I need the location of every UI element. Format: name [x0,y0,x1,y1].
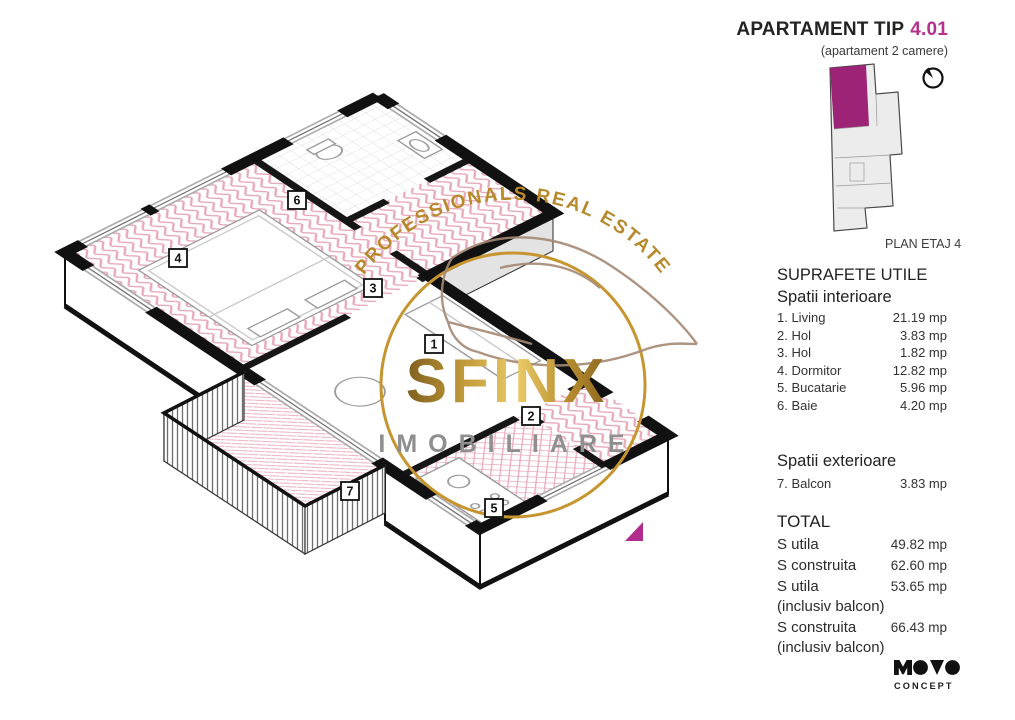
row-label: S utila [777,578,819,595]
brand-sfinx: SFINX [406,347,609,416]
table-row: 2. Hol 3.83 mp [777,328,947,343]
table-row: 3. Hol 1.82 mp [777,345,947,360]
table-row: 4. Dormitor 12.82 mp [777,363,947,378]
mini-building [830,64,902,231]
room-label-hol2: 2 [522,407,540,425]
svg-text:2: 2 [528,410,535,424]
room-label-hol3: 3 [364,279,382,297]
apartment-subtitle: (apartament 2 camere) [821,44,948,58]
section-title-suprafete: SUPRAFETE UTILE [777,266,927,285]
total-row: S utila 53.65 mp [777,578,947,595]
row-value: 5.96 mp [900,380,947,395]
row-value: 12.82 mp [893,363,947,378]
total-row: S construita 66.43 mp [777,619,947,636]
section-title-total: TOTAL [777,512,830,532]
svg-text:7: 7 [347,485,354,499]
mono-concept-logo: MONO CONCEPT [891,658,976,696]
svg-text:3: 3 [370,282,377,296]
total-row-note: (inclusiv balcon) [777,639,885,656]
table-row: 7. Balcon 3.83 mp [777,476,947,491]
section-title-exterior: Spatii exterioare [777,452,896,471]
mini-floor-plan: PLAN ETAJ 4 [810,58,990,258]
total-row: S utila 49.82 mp [777,536,947,553]
apartment-number: 4.01 [910,19,948,40]
page: PROFESSIONALS REAL ESTATE SFINX IMOBILIA… [0,0,1015,720]
row-label: 4. Dormitor [777,363,841,378]
section-title-interior: Spatii interioare [777,288,892,307]
room-label-living: 1 [425,335,443,353]
table-row: 5. Bucatarie 5.96 mp [777,380,947,395]
row-value: 1.82 mp [900,345,947,360]
row-label: S utila [777,536,819,553]
total-row: S construita 62.60 mp [777,557,947,574]
row-label: S construita [777,557,856,574]
row-label: S construita [777,619,856,636]
row-label: 5. Bucatarie [777,380,846,395]
room-label-bucatarie: 5 [485,499,503,517]
row-label: 1. Living [777,310,825,325]
svg-text:4: 4 [175,252,182,266]
row-value: 62.60 mp [891,558,947,573]
svg-text:1: 1 [431,338,438,352]
floor-plan-drawing: PROFESSIONALS REAL ESTATE SFINX IMOBILIA… [0,0,760,720]
row-label: 2. Hol [777,328,811,343]
row-label: 6. Baie [777,398,817,413]
north-compass-icon [924,68,943,88]
row-value: 21.19 mp [893,310,947,325]
plan-marker-triangle [625,522,643,541]
mini-plan-caption: PLAN ETAJ 4 [885,237,961,251]
svg-text:5: 5 [491,502,498,516]
mono-logo-glyphs [894,660,960,675]
table-row: 6. Baie 4.20 mp [777,398,947,413]
table-row: 1. Living 21.19 mp [777,310,947,325]
row-label: 7. Balcon [777,476,831,491]
room-label-balcon: 7 [341,482,359,500]
row-value: 3.83 mp [900,328,947,343]
row-value: 49.82 mp [891,537,947,552]
room-label-dormitor: 4 [169,249,187,267]
svg-text:6: 6 [294,194,301,208]
row-label: 3. Hol [777,345,811,360]
room-label-baie: 6 [288,191,306,209]
total-row-note: (inclusiv balcon) [777,598,885,615]
row-value: 66.43 mp [891,620,947,635]
logo-concept-text: CONCEPT [894,681,954,691]
apartment-title: APARTAMENT TIP [736,19,904,40]
brand-imobiliare: IMOBILIARE [378,430,635,458]
row-value: 4.20 mp [900,398,947,413]
page-title: APARTAMENT TIP4.01 [736,19,948,41]
row-value: 53.65 mp [891,579,947,594]
highlighted-unit [830,65,869,129]
row-value: 3.83 mp [900,476,947,491]
